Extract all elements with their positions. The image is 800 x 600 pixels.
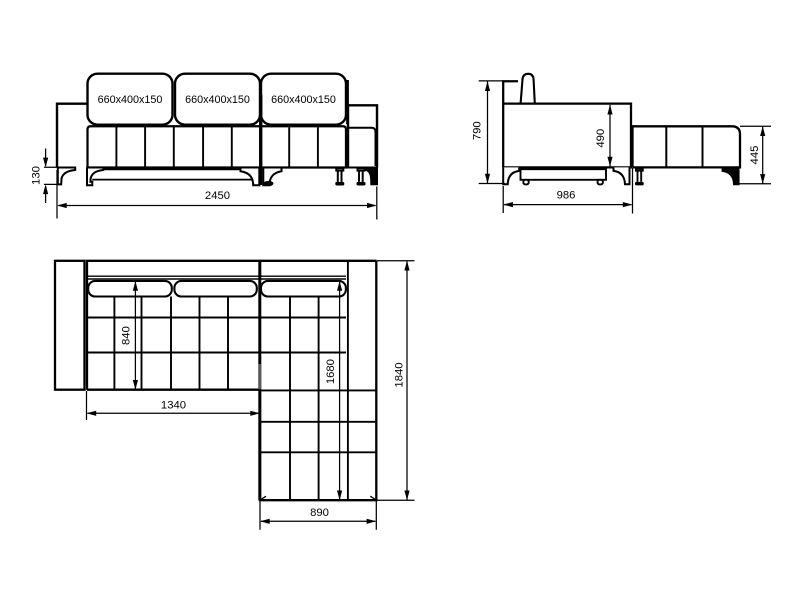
svg-text:1340: 1340 <box>161 400 186 412</box>
svg-text:890: 890 <box>310 507 329 519</box>
svg-text:986: 986 <box>557 190 576 202</box>
svg-text:1840: 1840 <box>393 362 405 387</box>
svg-text:490: 490 <box>595 129 607 148</box>
svg-text:660x400x150: 660x400x150 <box>98 94 163 106</box>
svg-text:660x400x150: 660x400x150 <box>185 94 250 106</box>
svg-text:840: 840 <box>120 326 132 345</box>
svg-text:790: 790 <box>472 121 484 140</box>
svg-text:2450: 2450 <box>205 190 230 202</box>
svg-text:1680: 1680 <box>325 359 337 384</box>
svg-text:660x400x150: 660x400x150 <box>271 94 336 106</box>
svg-text:130: 130 <box>31 166 43 185</box>
svg-text:445: 445 <box>749 146 761 165</box>
